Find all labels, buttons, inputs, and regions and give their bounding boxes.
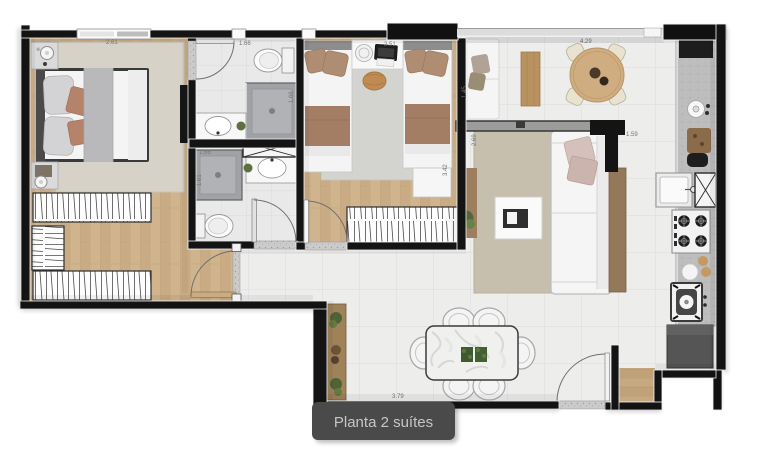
svg-text:2.61: 2.61 xyxy=(106,40,118,46)
svg-text:❊: ❊ xyxy=(36,47,40,53)
svg-text:Planta 2 suítes: Planta 2 suítes xyxy=(334,414,433,431)
svg-text:3.42: 3.42 xyxy=(443,164,449,176)
svg-text:2.69: 2.69 xyxy=(472,134,478,146)
svg-text:1.66: 1.66 xyxy=(199,150,211,156)
svg-text:1.59: 1.59 xyxy=(626,132,638,138)
svg-text:1.61: 1.61 xyxy=(197,174,203,186)
svg-text:1.66: 1.66 xyxy=(239,41,251,47)
svg-text:1.45: 1.45 xyxy=(462,86,468,98)
svg-text:1.66: 1.66 xyxy=(289,91,295,103)
